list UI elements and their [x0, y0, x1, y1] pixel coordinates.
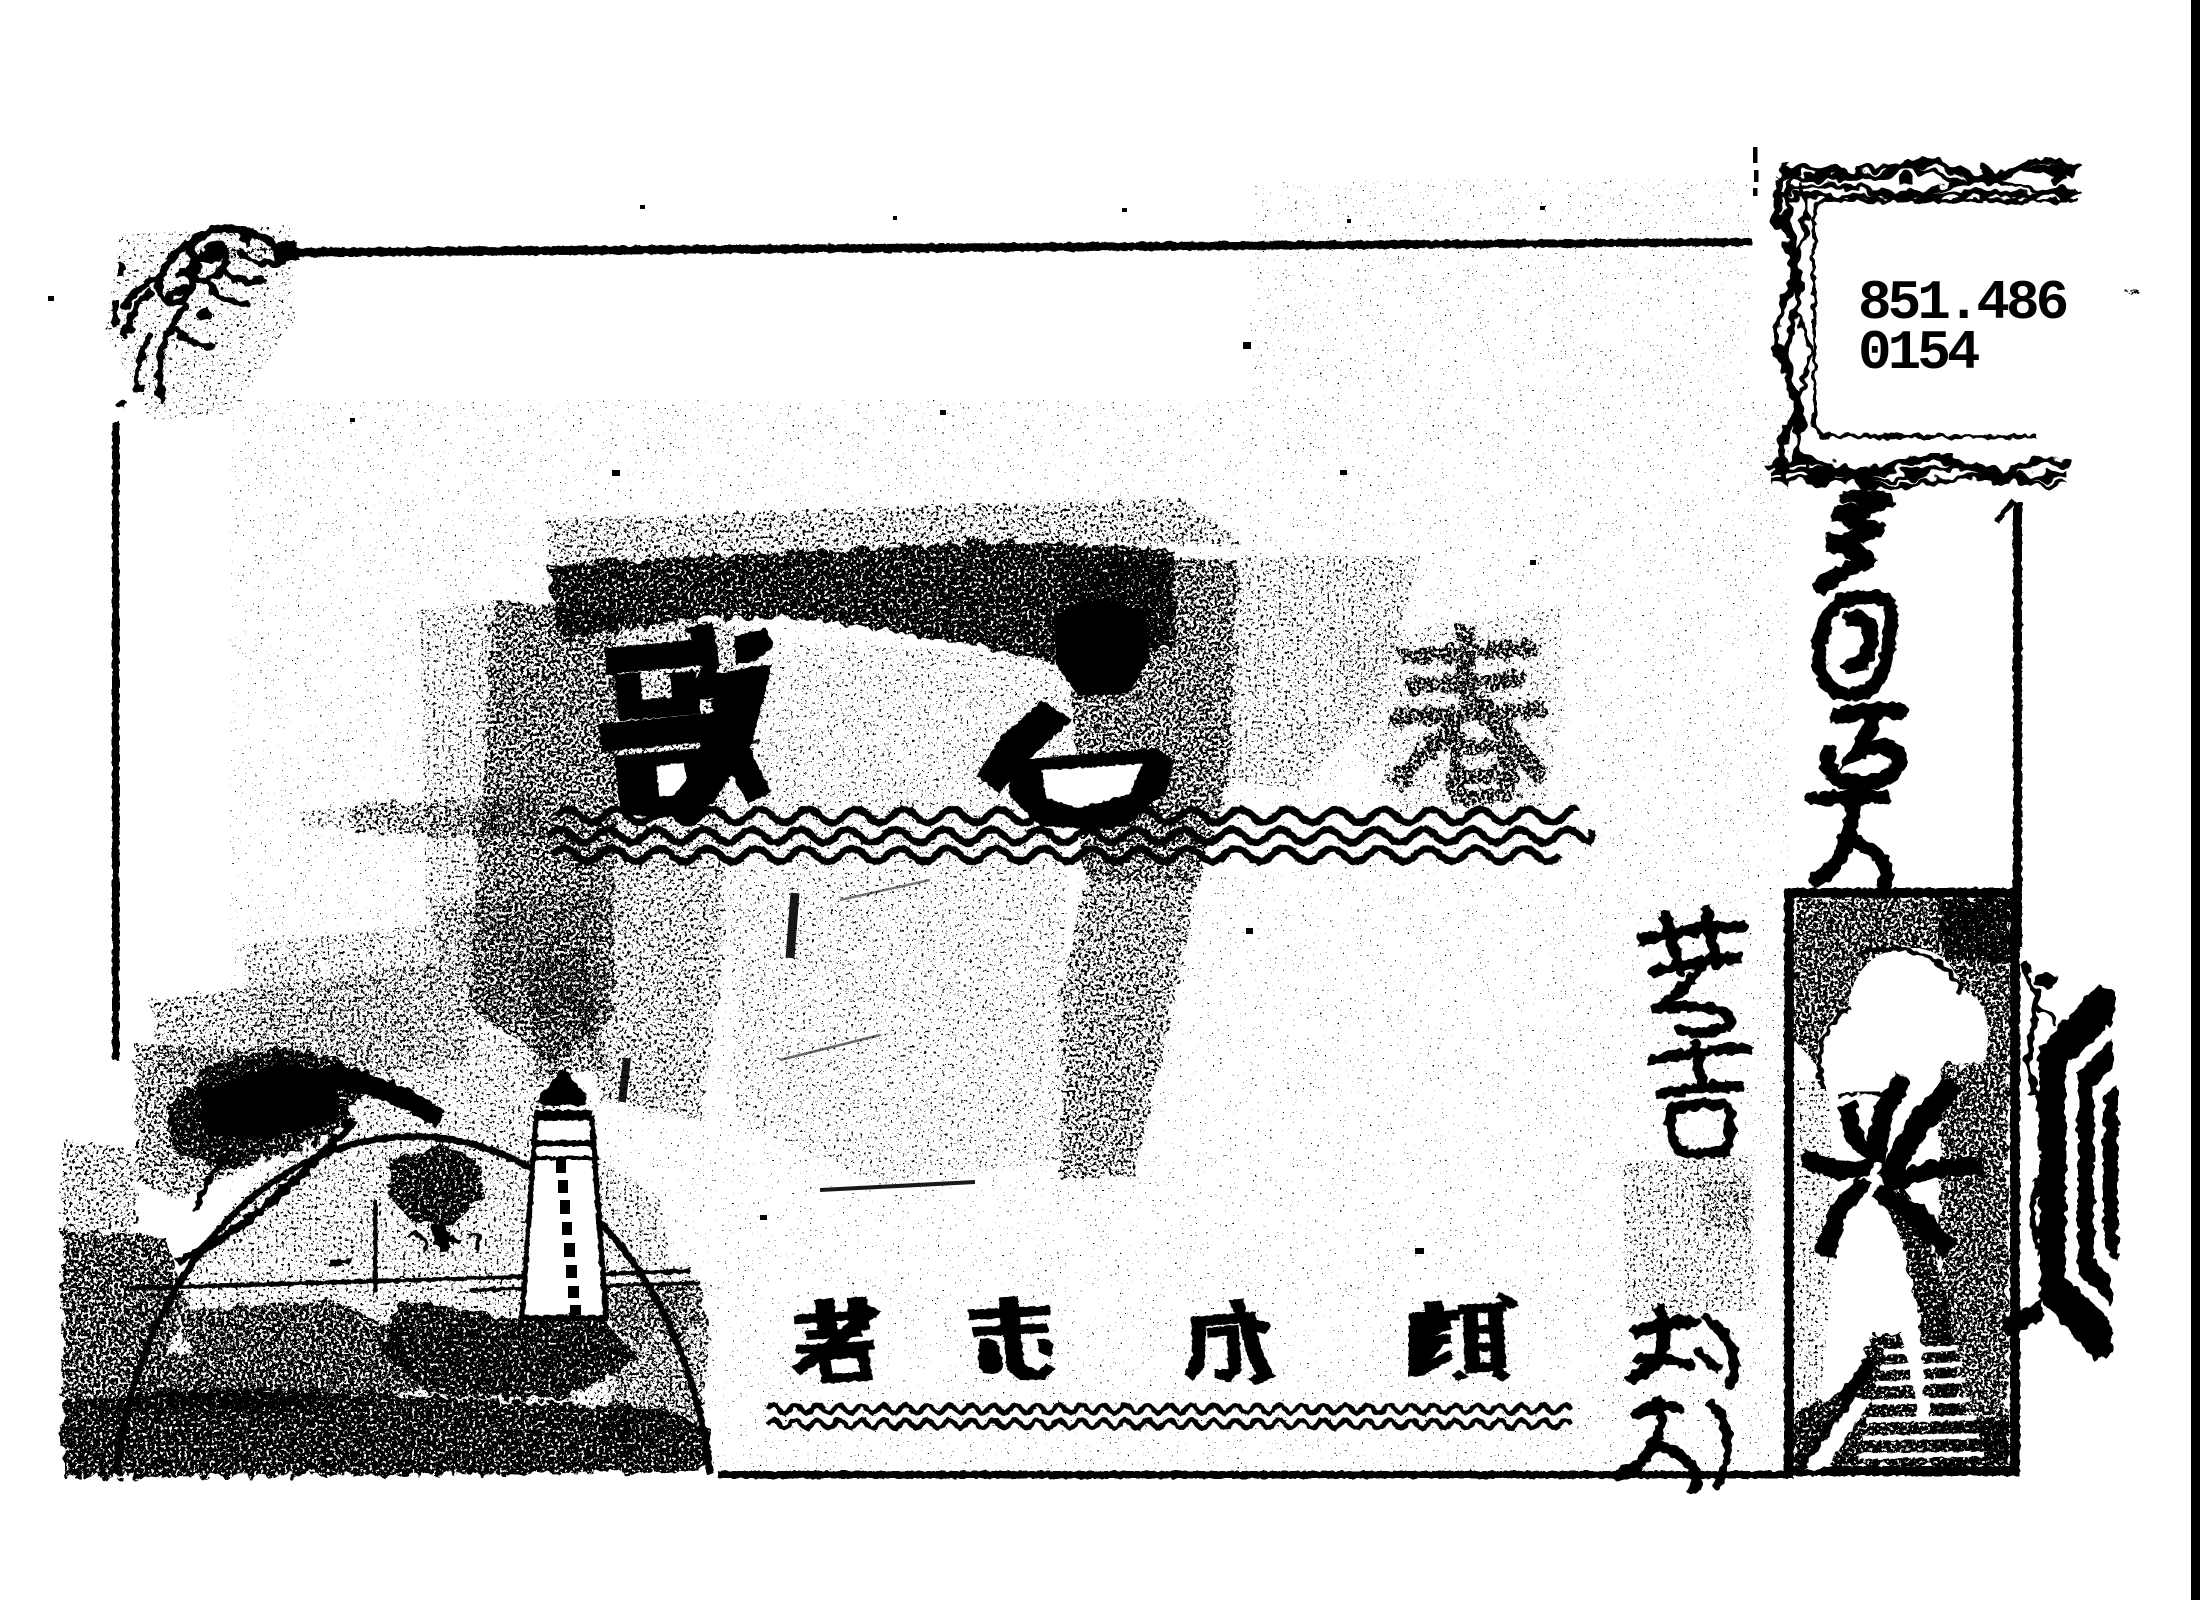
svg-text:0154: 0154: [1858, 321, 1979, 385]
